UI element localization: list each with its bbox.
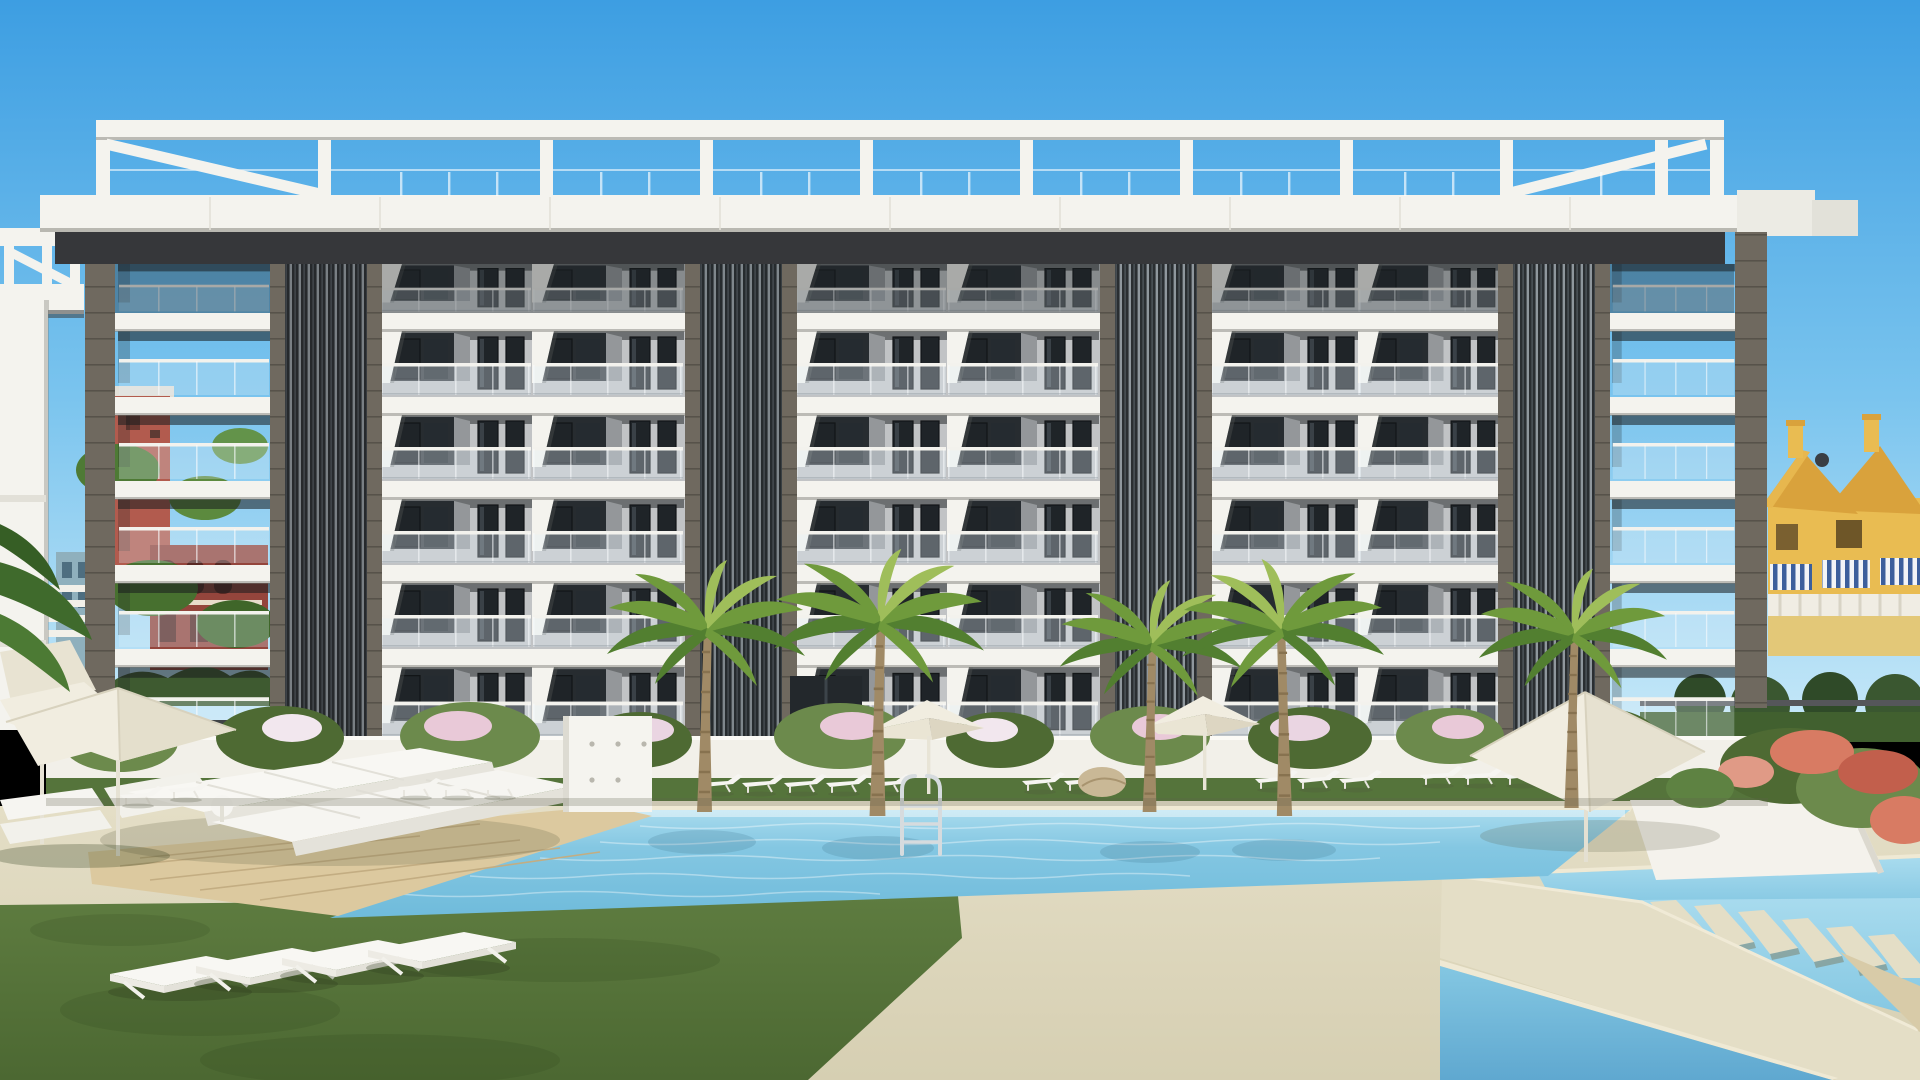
main-building <box>40 120 1858 750</box>
satellite-dish <box>1815 453 1829 467</box>
fascia-return-right <box>1737 190 1815 236</box>
roof-fascia <box>40 195 1737 232</box>
second-pool <box>1440 854 1920 1080</box>
roof-soffit <box>55 232 1725 264</box>
shower-wall <box>563 716 652 812</box>
corner-column-left <box>85 215 115 693</box>
wall-base-shadow <box>46 798 1768 806</box>
scene-svg <box>0 0 1920 1080</box>
corner-column-right <box>1735 232 1767 708</box>
render-canvas <box>0 0 1920 1080</box>
